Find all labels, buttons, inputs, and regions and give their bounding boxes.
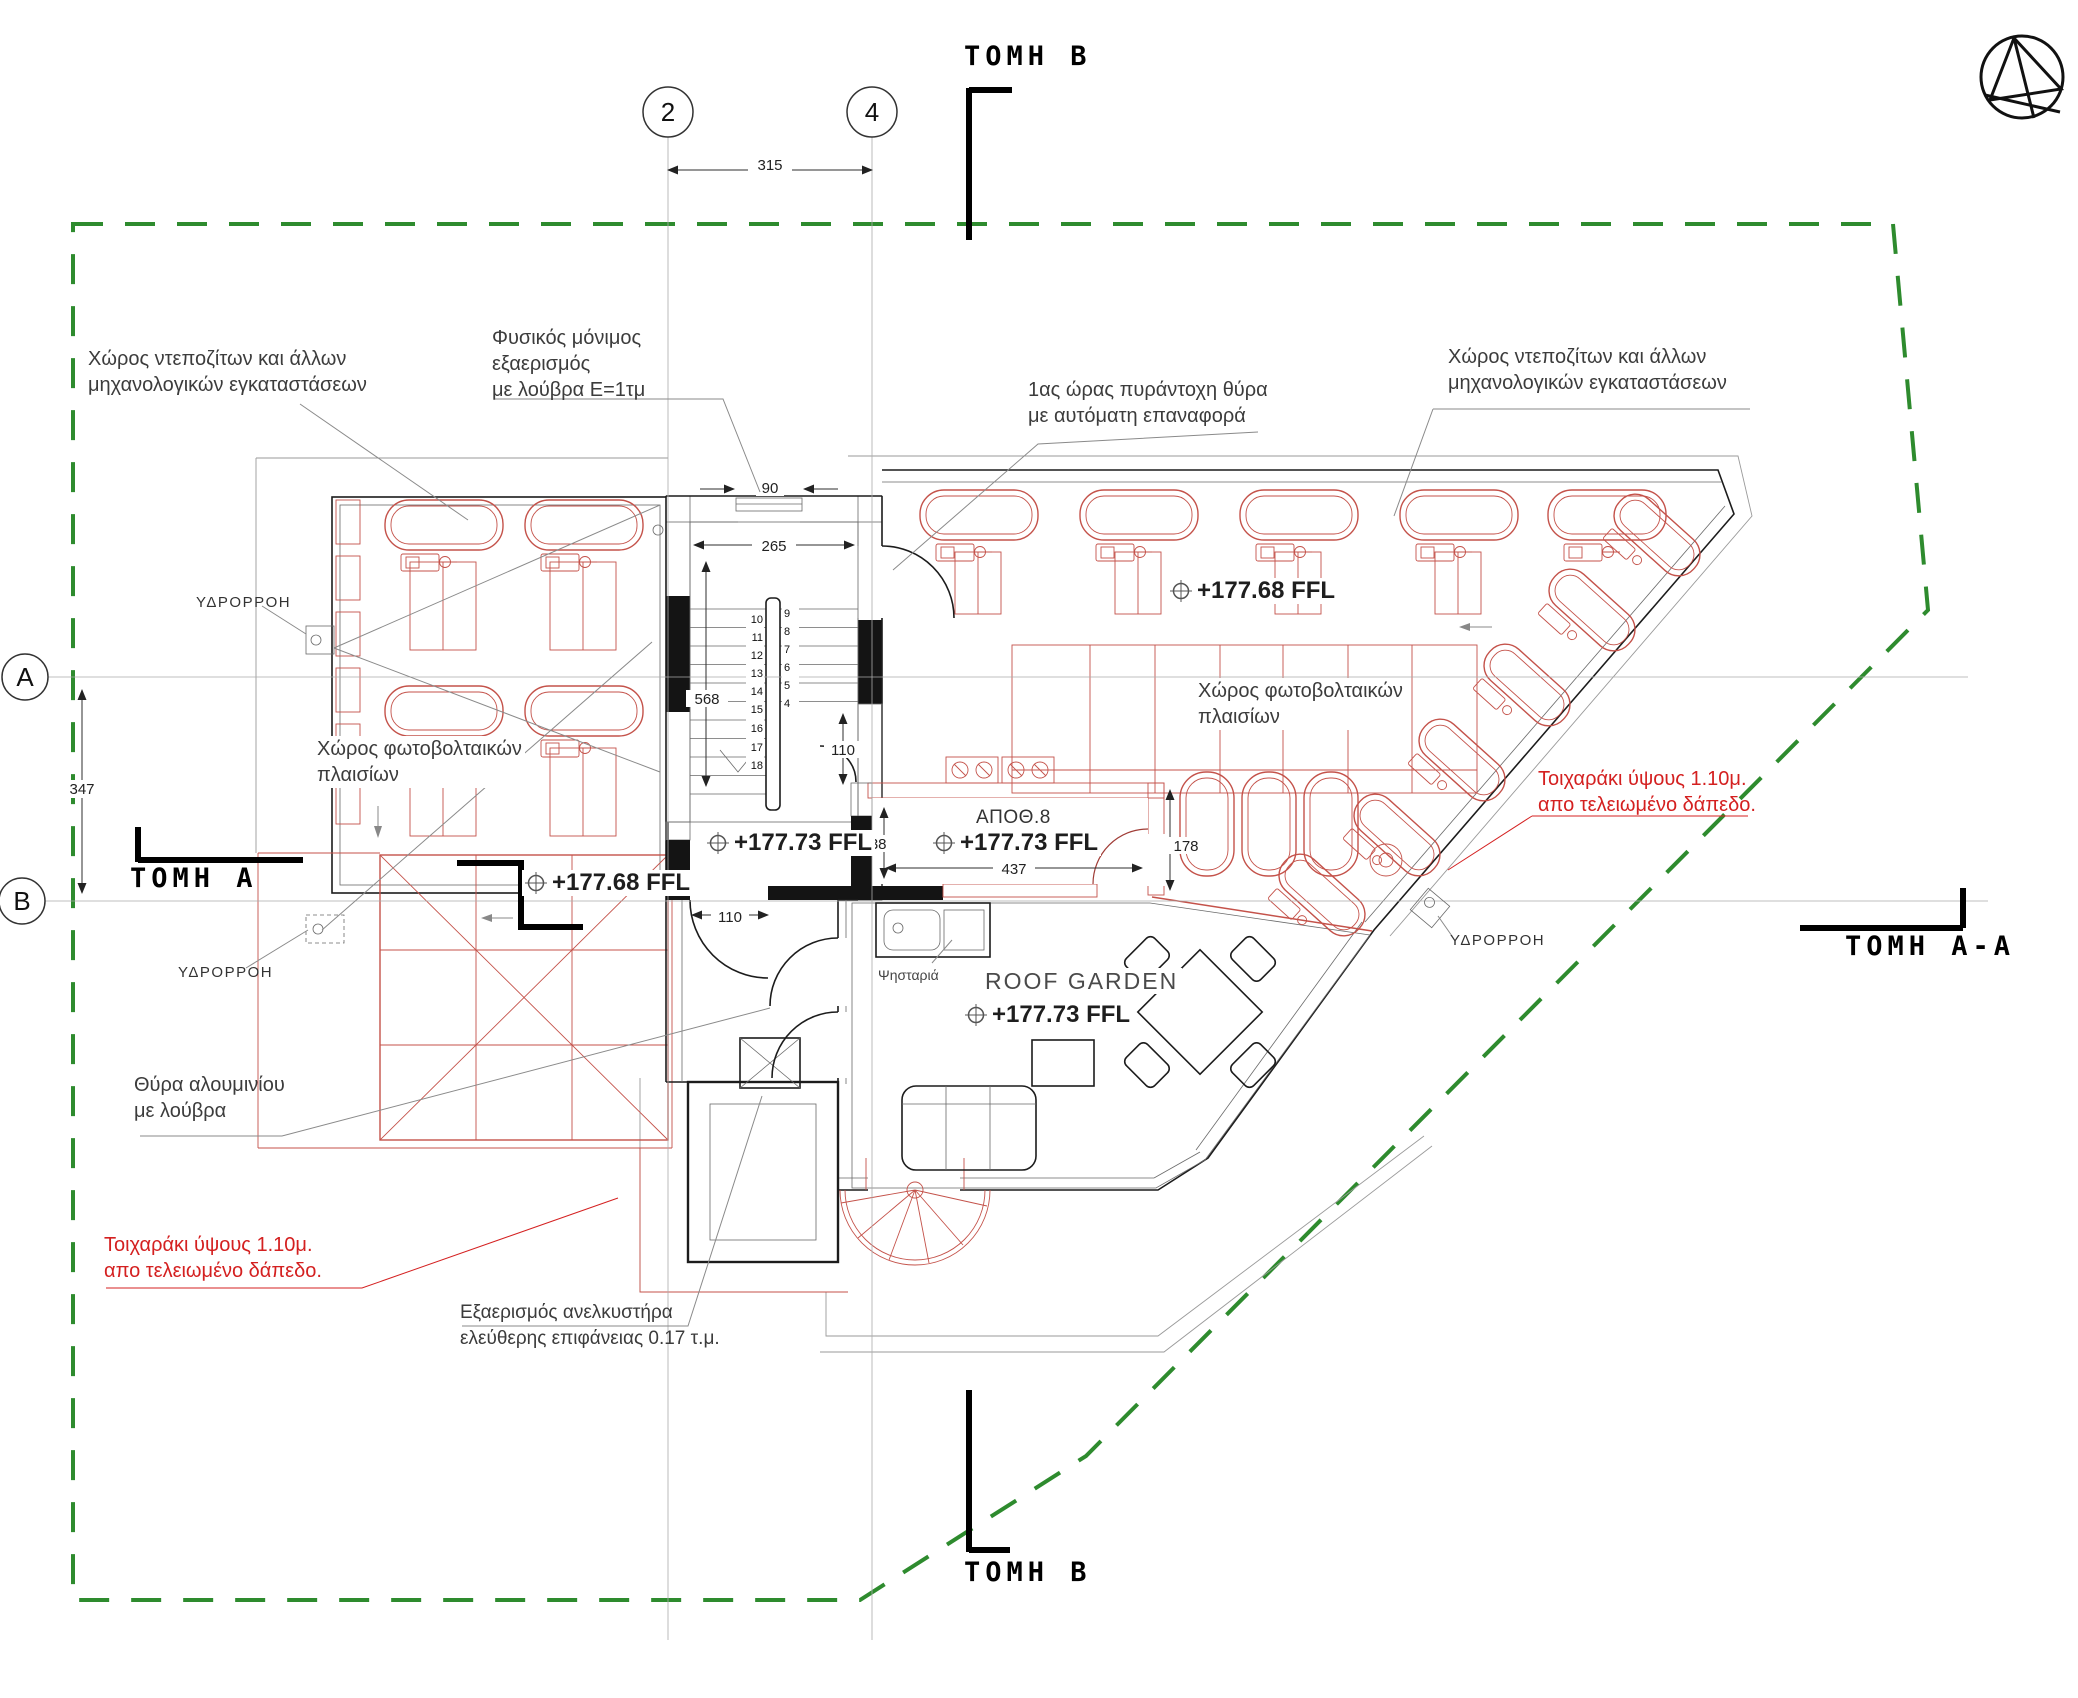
level-target-icon	[965, 1004, 987, 1026]
svg-text:6: 6	[784, 662, 790, 674]
label-deposits-left: Χώρος ντεποζίτων και άλλων μηχανολογικών…	[88, 346, 367, 398]
svg-text:5: 5	[784, 680, 790, 692]
dim-louvre: 90	[762, 480, 779, 497]
svg-text:10: 10	[751, 614, 763, 626]
label-bbq: Ψησταριά	[878, 962, 939, 988]
dim-stair-width: 265	[761, 538, 786, 555]
grid-bubble-2: 2	[661, 97, 675, 127]
svg-text:12: 12	[751, 650, 763, 662]
label-aluminum-door: Θύρα αλουμινίου με λούβρα	[134, 1072, 285, 1124]
label-parapet-right: Τοιχαράκι ύψους 1.10μ. απο τελειωμένο δά…	[1538, 766, 1756, 818]
level-storage: +177.73 FFL	[930, 830, 1101, 856]
svg-text:7: 7	[784, 644, 790, 656]
level-target-icon	[525, 872, 547, 894]
level-target-icon	[1170, 580, 1192, 602]
svg-text:8: 8	[784, 626, 790, 638]
svg-text:4: 4	[784, 698, 790, 710]
pv-area-left	[258, 853, 848, 1292]
section-label-a: TOMH A	[130, 866, 258, 892]
label-deposits-right: Χώρος ντεποζίτων και άλλων μηχανολογικών…	[1448, 344, 1727, 396]
dim-storage-side: 178	[1173, 838, 1198, 855]
svg-text:16: 16	[751, 723, 763, 735]
level-target-icon	[933, 832, 955, 854]
vertical-tanks	[1180, 772, 1402, 876]
dim-grid-span: 315	[757, 157, 782, 174]
svg-text:17: 17	[751, 742, 763, 754]
grid-bubble-b: B	[13, 886, 30, 916]
level-right-roof: +177.68 FFL	[1167, 578, 1338, 604]
garden-parapet-line	[1152, 897, 1372, 931]
roof-garden-tiles	[852, 903, 1370, 1188]
section-label-aa: TOMH A-A	[1845, 934, 2015, 960]
room-label-storage: ΑΠΟΘ.8	[976, 805, 1051, 831]
label-rain-outlet-2: ΥΔΡΟΡΡΟΗ	[178, 960, 273, 986]
label-rain-outlet-1: ΥΔΡΟΡΡΟΗ	[196, 590, 291, 616]
grid-bubble-a: A	[16, 662, 34, 692]
svg-text:11: 11	[752, 632, 763, 644]
level-lobby: +177.73 FFL	[704, 830, 875, 856]
svg-text:18: 18	[751, 760, 763, 772]
dim-row-span: 347	[69, 781, 94, 798]
spiral-stair	[840, 1158, 990, 1265]
section-label-b-bottom: TOMH B	[964, 1560, 1092, 1586]
label-natural-vent: Φυσικός μόνιμος εξαερισμός με λούβρα Ε=1…	[492, 325, 645, 403]
section-label-b-top: TOMH B	[964, 44, 1092, 70]
grid-bubble-4: 4	[865, 97, 879, 127]
svg-text:15: 15	[751, 704, 763, 716]
label-parapet-left: Τοιχαράκι ύψους 1.10μ. απο τελειωμένο δά…	[104, 1232, 322, 1284]
label-fire-door: 1ας ώρας πυράντοχη θύρα με αυτόματη επαν…	[1028, 377, 1268, 429]
dim-storage-length: 437	[1001, 861, 1026, 878]
svg-text:14: 14	[751, 686, 763, 698]
north-arrow-icon	[1981, 36, 2063, 118]
svg-text:13: 13	[751, 668, 763, 680]
level-garden: +177.73 FFL	[962, 1002, 1133, 1028]
dim-door-lobby: 110	[718, 909, 742, 926]
dim-door-right: 110	[831, 742, 855, 759]
svg-text:9: 9	[784, 608, 790, 620]
dim-stair-length: 568	[694, 691, 719, 708]
room-mechanical-left	[332, 497, 668, 893]
label-pv-left: Χώρος φωτοβολταικών πλαισίων	[314, 736, 525, 788]
elevator-shaft	[688, 1038, 838, 1262]
site-boundary	[73, 224, 1928, 1600]
label-rain-outlet-3: ΥΔΡΟΡΡΟΗ	[1450, 928, 1545, 954]
room-label-roof-garden: ROOF GARDEN	[981, 968, 1182, 994]
eave-outlines	[256, 456, 1752, 1352]
level-left-roof: +177.68 FFL	[522, 870, 693, 896]
label-pv-right: Χώρος φωτοβολταικών πλαισίων	[1195, 678, 1406, 730]
level-target-icon	[707, 832, 729, 854]
floor-plan-sheet: 315 347 90 265 568 110 110 437 138 178 9…	[0, 0, 2078, 1698]
label-elevator-vent: Εξαερισμός ανελκυστήρα ελεύθερης επιφάνε…	[460, 1300, 720, 1352]
